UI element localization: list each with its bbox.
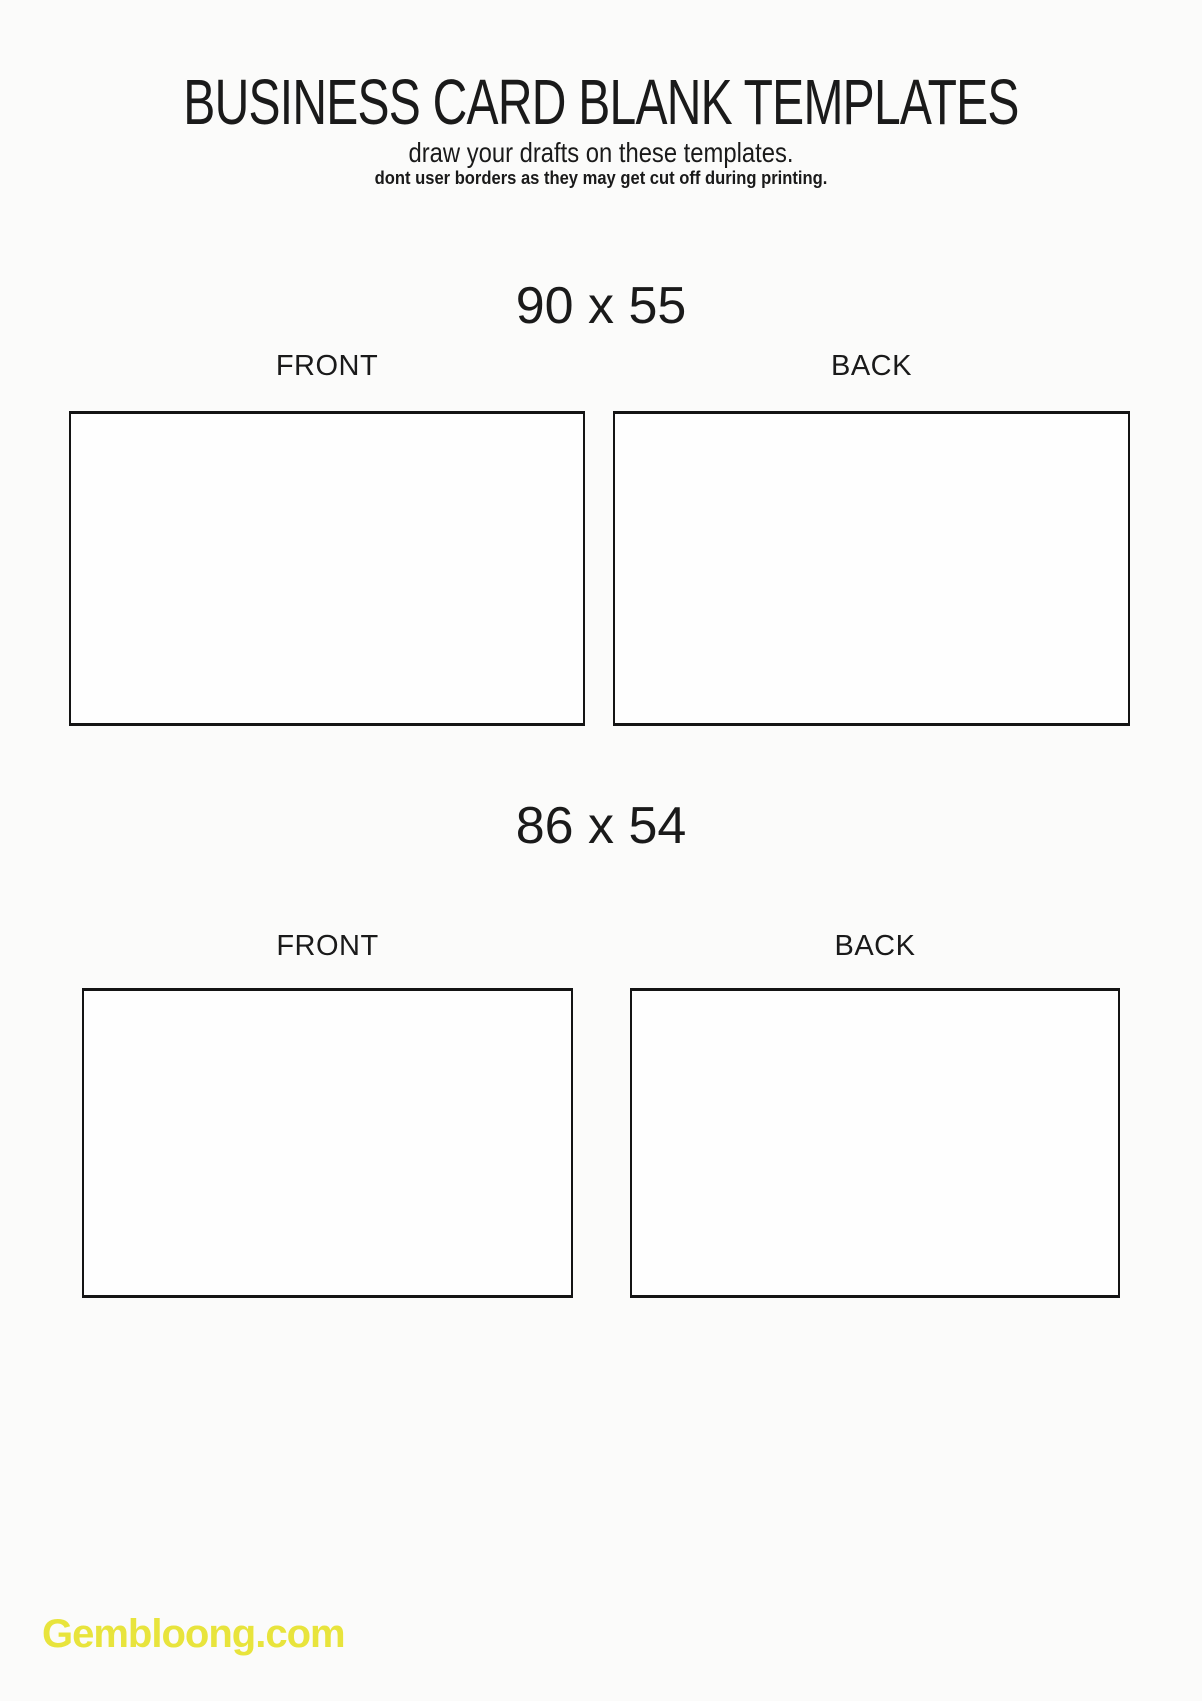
- blank-card-front-90x55: [69, 411, 585, 726]
- blank-card-back-90x55: [613, 411, 1130, 726]
- back-label-90x55: BACK: [613, 352, 1130, 381]
- page-subtitle: draw your drafts on these templates.: [90, 139, 1112, 167]
- size-heading-86x54: 86 x 54: [0, 800, 1202, 852]
- blank-card-front-86x54: [82, 988, 573, 1298]
- front-label-90x55: FRONT: [69, 352, 585, 381]
- back-label-86x54: BACK: [630, 932, 1120, 961]
- size-heading-90x55: 90 x 55: [0, 280, 1202, 332]
- watermark: Gembloong.com: [42, 1610, 345, 1658]
- page-title: BUSINESS CARD BLANK TEMPLATES: [150, 70, 1052, 134]
- page-note: dont user borders as they may get cut of…: [48, 169, 1154, 187]
- front-label-86x54: FRONT: [82, 932, 573, 961]
- blank-card-back-86x54: [630, 988, 1120, 1298]
- template-page: BUSINESS CARD BLANK TEMPLATES draw your …: [0, 0, 1202, 1701]
